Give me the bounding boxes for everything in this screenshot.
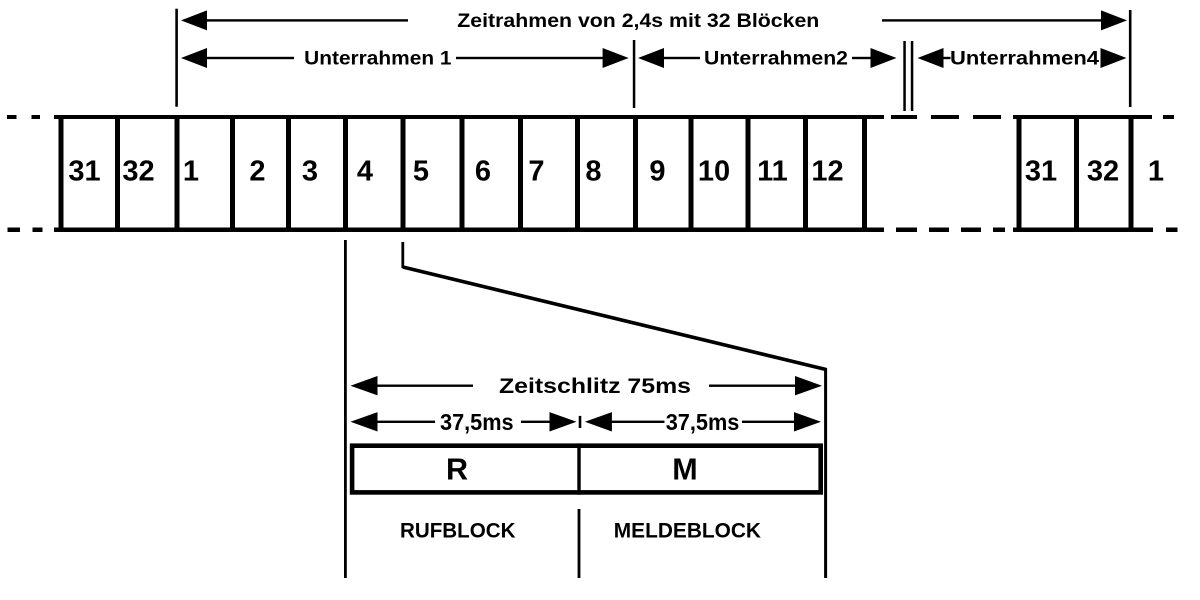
svg-text:11: 11	[757, 155, 788, 187]
svg-text:RUFBLOCK: RUFBLOCK	[400, 519, 516, 542]
svg-text:32: 32	[122, 155, 154, 187]
svg-text:Unterrahmen 1: Unterrahmen 1	[304, 49, 452, 70]
svg-text:Unterrahmen2: Unterrahmen2	[704, 49, 848, 70]
svg-text:Zeitrahmen von 2,4s mit 32 Blö: Zeitrahmen von 2,4s mit 32 Blöcken	[457, 11, 819, 32]
svg-text:10: 10	[698, 155, 730, 187]
svg-text:31: 31	[68, 155, 100, 187]
svg-text:2: 2	[249, 155, 265, 187]
svg-text:5: 5	[413, 155, 429, 187]
svg-text:7: 7	[528, 155, 544, 187]
svg-text:37,5ms: 37,5ms	[666, 409, 740, 435]
svg-text:32: 32	[1087, 155, 1119, 187]
svg-text:R: R	[446, 452, 468, 486]
svg-text:37,5ms: 37,5ms	[440, 409, 514, 435]
svg-text:MELDEBLOCK: MELDEBLOCK	[614, 519, 761, 542]
svg-text:Unterrahmen4: Unterrahmen4	[950, 49, 1099, 70]
svg-text:3: 3	[302, 155, 318, 187]
svg-text:9: 9	[649, 155, 665, 187]
svg-text:M: M	[672, 452, 697, 486]
svg-text:Zeitschlitz 75ms: Zeitschlitz 75ms	[499, 374, 691, 398]
svg-text:31: 31	[1025, 155, 1057, 187]
svg-text:4: 4	[357, 155, 373, 187]
svg-text:8: 8	[585, 155, 601, 187]
svg-text:12: 12	[811, 155, 843, 187]
svg-text:6: 6	[475, 155, 491, 187]
svg-text:1: 1	[183, 155, 199, 187]
svg-text:1: 1	[1148, 155, 1164, 187]
